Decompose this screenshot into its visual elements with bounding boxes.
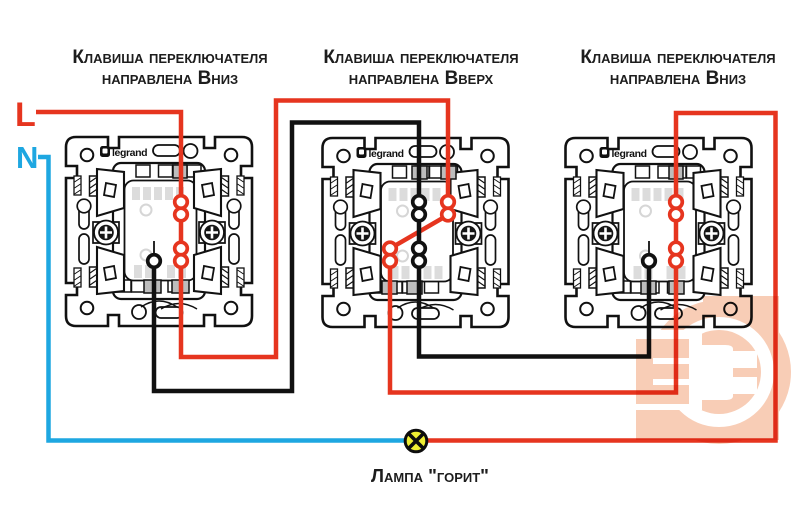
- svg-text:Клавиша переключателя: Клавиша переключателя: [323, 47, 518, 68]
- svg-text:направлена Вниз: направлена Вниз: [610, 68, 746, 89]
- svg-text:L: L: [15, 96, 36, 134]
- svg-text:Лампа "горит": Лампа "горит": [371, 465, 489, 486]
- svg-text:N: N: [16, 140, 38, 175]
- svg-text:направлена Вниз: направлена Вниз: [102, 68, 238, 89]
- svg-text:направлена Вверх: направлена Вверх: [349, 68, 494, 89]
- svg-text:Клавиша переключателя: Клавиша переключателя: [72, 47, 267, 68]
- svg-text:Клавиша переключателя: Клавиша переключателя: [580, 47, 775, 68]
